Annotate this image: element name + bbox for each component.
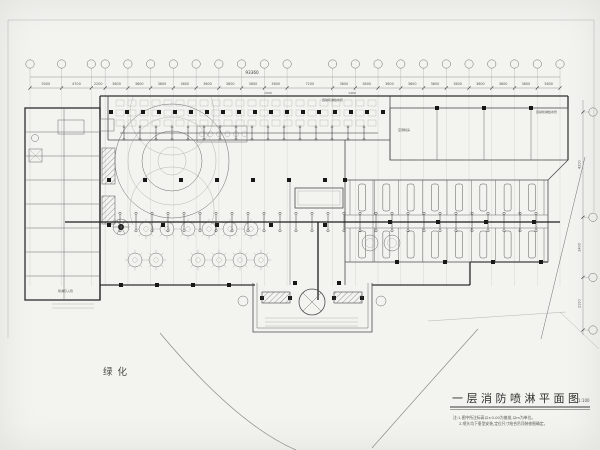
total-dimension: 93360 bbox=[245, 70, 259, 75]
private-room-furniture bbox=[350, 180, 544, 262]
svg-text:2100: 2100 bbox=[578, 299, 582, 308]
svg-text:3600: 3600 bbox=[135, 82, 144, 86]
driveway-arcs bbox=[160, 312, 599, 450]
room-label-ac: 空调机房 bbox=[398, 127, 410, 132]
svg-text:3600: 3600 bbox=[271, 82, 280, 86]
right-dimension-column: 420024002100 bbox=[578, 100, 598, 335]
note-line-1: 注:1.图中所注标高以±0.00为基准,以m为单位。 bbox=[453, 415, 535, 420]
svg-text:2200: 2200 bbox=[94, 82, 103, 86]
landscape-label: 绿化 bbox=[103, 366, 132, 378]
sheet-frame-lines bbox=[8, 20, 594, 338]
svg-text:3600: 3600 bbox=[362, 82, 371, 86]
svg-text:3600: 3600 bbox=[408, 82, 417, 86]
svg-text:3600: 3600 bbox=[249, 82, 258, 86]
svg-text:3600: 3600 bbox=[226, 82, 235, 86]
svg-text:3600: 3600 bbox=[499, 82, 508, 86]
title-block: 一层消防喷淋平面图 1:100 注:1.图中所注标高以±0.00为基准,以m为单… bbox=[450, 391, 590, 426]
svg-text:3600: 3600 bbox=[385, 82, 394, 86]
sub-dimension-2: 1460 bbox=[348, 91, 356, 95]
pipe-label-top: 自动喷淋给水管 bbox=[322, 97, 343, 102]
svg-text:3600: 3600 bbox=[476, 82, 485, 86]
floor-plan-canvas: 5000470022003600360036003600360036003600… bbox=[0, 0, 600, 450]
structural-columns bbox=[107, 106, 543, 300]
svg-text:2400: 2400 bbox=[578, 243, 582, 252]
building-outline bbox=[25, 96, 585, 339]
sub-dimension-1: 1500 bbox=[264, 91, 272, 95]
svg-text:3600: 3600 bbox=[544, 82, 553, 86]
plan-title: 一层消防喷淋平面图 bbox=[452, 391, 583, 405]
dining-tables bbox=[113, 131, 400, 270]
svg-text:3600: 3600 bbox=[522, 82, 531, 86]
svg-text:3600: 3600 bbox=[453, 82, 462, 86]
pipe-label-inlet: 喷淋引入管 bbox=[58, 288, 73, 293]
sprinkler-pipes bbox=[65, 133, 560, 300]
svg-text:3600: 3600 bbox=[158, 82, 167, 86]
entrance-porch bbox=[238, 283, 386, 332]
svg-text:3600: 3600 bbox=[112, 82, 121, 86]
svg-text:3600: 3600 bbox=[180, 82, 189, 86]
svg-text:4200: 4200 bbox=[578, 160, 582, 169]
svg-text:5000: 5000 bbox=[41, 82, 50, 86]
note-line-2: 2.喷头均下垂型安装,定位尺寸结合吊顶装修图确定。 bbox=[459, 421, 547, 426]
pipe-label-right: 自动喷淋给水管 bbox=[536, 109, 557, 114]
svg-text:3600: 3600 bbox=[203, 82, 212, 86]
scanned-drawing-sheet: 5000470022003600360036003600360036003600… bbox=[0, 0, 600, 450]
svg-text:3600: 3600 bbox=[431, 82, 440, 86]
svg-text:4700: 4700 bbox=[72, 82, 81, 86]
svg-text:3600: 3600 bbox=[340, 82, 349, 86]
svg-text:7200: 7200 bbox=[306, 82, 315, 86]
plan-scale: 1:100 bbox=[578, 398, 590, 403]
